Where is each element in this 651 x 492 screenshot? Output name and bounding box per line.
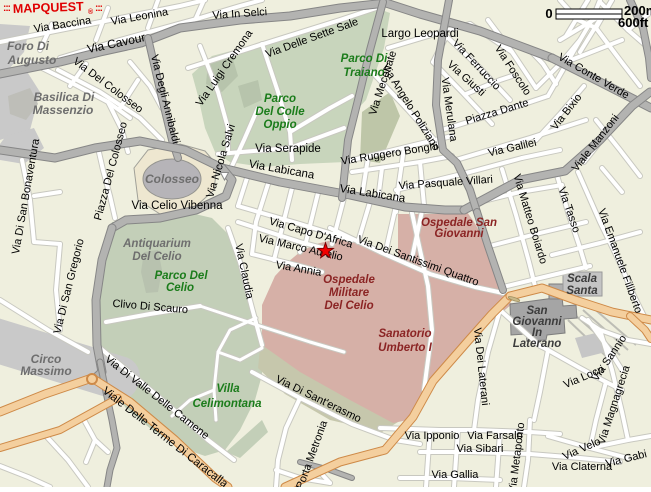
svg-text:Ospedale: Ospedale	[323, 274, 375, 286]
svg-text:Massenzio: Massenzio	[33, 103, 94, 117]
svg-text:Foro Di: Foro Di	[7, 39, 50, 53]
svg-text:0: 0	[545, 6, 552, 21]
svg-text:®: ®	[88, 8, 94, 16]
svg-text:Parco Di: Parco Di	[341, 53, 388, 65]
svg-text:Via Ipponio: Via Ipponio	[405, 430, 460, 442]
svg-text:Parco: Parco	[264, 93, 296, 105]
svg-text:Sanatorio: Sanatorio	[378, 328, 431, 340]
svg-text:Del Colle: Del Colle	[255, 106, 305, 118]
svg-text:Del Celio: Del Celio	[324, 300, 373, 312]
svg-text:Largo Leopardi: Largo Leopardi	[381, 28, 458, 40]
svg-text:Celio: Celio	[166, 282, 194, 294]
svg-text:Antiquarium: Antiquarium	[122, 238, 191, 250]
svg-text:Basilica Di: Basilica Di	[34, 90, 95, 104]
svg-text:Giovanni: Giovanni	[434, 228, 484, 240]
svg-text:Villa: Villa	[216, 383, 240, 395]
svg-text:Oppio: Oppio	[263, 119, 296, 131]
svg-text:Militare: Militare	[329, 287, 370, 299]
svg-text:Del Celio: Del Celio	[132, 251, 181, 263]
svg-text:Umberto I: Umberto I	[378, 342, 432, 354]
svg-text:MAPQUEST: MAPQUEST	[13, 0, 85, 16]
svg-text:600ft: 600ft	[618, 15, 649, 30]
svg-text:Via Serapide: Via Serapide	[255, 143, 321, 155]
svg-text:Via Sibari: Via Sibari	[457, 443, 504, 455]
svg-text:Via Gallia: Via Gallia	[432, 469, 480, 481]
svg-text:Celimontana: Celimontana	[192, 398, 262, 410]
svg-text:Scala: Scala	[567, 273, 598, 285]
svg-text:Santa: Santa	[566, 285, 598, 297]
svg-text:Colosseo: Colosseo	[145, 172, 199, 186]
svg-text:Massimo: Massimo	[20, 364, 71, 378]
svg-text:Laterano: Laterano	[513, 338, 562, 350]
svg-text:Via Claterna: Via Claterna	[552, 461, 613, 473]
svg-text:Augusto: Augusto	[7, 53, 57, 67]
svg-text::::: :::	[3, 3, 11, 14]
svg-text:Via Celio Vibenna: Via Celio Vibenna	[131, 200, 223, 212]
svg-text:Parco Del: Parco Del	[154, 270, 208, 282]
svg-text::::: :::	[95, 3, 103, 14]
